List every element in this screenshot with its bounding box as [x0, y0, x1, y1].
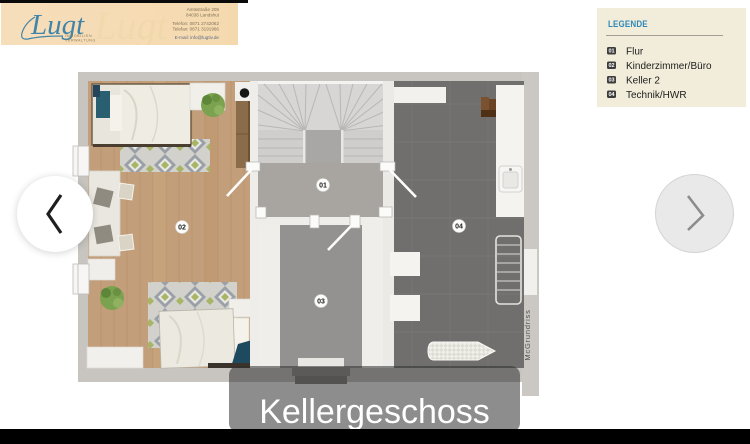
svg-text:Keller 2: Keller 2	[626, 76, 660, 87]
svg-text:Kinderzimmer/Büro: Kinderzimmer/Büro	[626, 61, 712, 72]
svg-text:03: 03	[317, 299, 325, 306]
svg-text:84036 Landshut: 84036 Landshut	[186, 13, 220, 18]
svg-text:Lugt: Lugt	[93, 3, 168, 45]
svg-text:Telefon: 0871 2742062: Telefon: 0871 2742062	[172, 21, 219, 26]
svg-text:Amtsstraße 209: Amtsstraße 209	[187, 7, 220, 12]
svg-text:Technik/HWR: Technik/HWR	[626, 90, 687, 101]
svg-text:03: 03	[608, 78, 614, 84]
svg-text:01: 01	[608, 49, 614, 55]
svg-text:IMMOBILIEN: IMMOBILIEN	[65, 34, 92, 38]
svg-text:01: 01	[319, 183, 327, 190]
svg-text:Telefax: 0871 3191966: Telefax: 0871 3191966	[173, 27, 220, 32]
svg-text:E-mail: info@lugtiv.de: E-mail: info@lugtiv.de	[175, 35, 220, 40]
svg-text:04: 04	[455, 224, 463, 231]
svg-text:Flur: Flur	[626, 47, 644, 58]
svg-text:VERWALTUNG: VERWALTUNG	[65, 39, 96, 43]
svg-text:McGrundriss: McGrundriss	[523, 309, 532, 360]
svg-text:02: 02	[608, 63, 614, 69]
svg-text:02: 02	[178, 225, 186, 232]
svg-text:04: 04	[608, 92, 615, 98]
